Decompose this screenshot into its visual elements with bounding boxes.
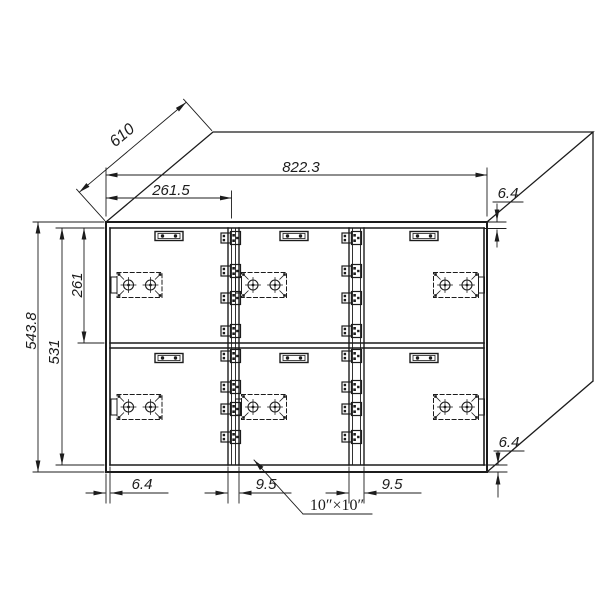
lock-assembly (111, 395, 162, 420)
dim-gap-left-label: 9.5 (256, 476, 278, 493)
label-plate (280, 232, 308, 241)
label-plate (155, 354, 183, 363)
door-gap-left (228, 228, 239, 465)
lock-assembly (236, 395, 287, 420)
lock-assembly (111, 273, 162, 298)
dim-inner-height: 531 (46, 228, 104, 465)
dim-door-height: 261 (69, 228, 104, 343)
dim-overall-height-label: 543.8 (23, 312, 40, 350)
dim-door-height-label: 261 (69, 272, 86, 298)
label-plate (410, 232, 438, 241)
dim-inner-height-label: 531 (46, 339, 63, 364)
label-plate (155, 232, 183, 241)
cabinet-isometric-drawing: 610 822.3 261.5 6.4 (0, 0, 600, 600)
lock-assembly (434, 273, 485, 298)
drawing-canvas: 610 822.3 261.5 6.4 (0, 0, 600, 600)
dim-left-frame-label: 6.4 (132, 476, 153, 493)
dim-top-frame: 6.4 (484, 185, 523, 247)
dim-depth: 610 (77, 99, 212, 220)
cabinet-front-frame (106, 222, 487, 472)
label-plate (280, 354, 308, 363)
lock-assembly (434, 395, 485, 420)
hinges (221, 232, 362, 444)
label-plate (410, 354, 438, 363)
lock-assemblies (111, 273, 485, 420)
dim-bottom-frame-label: 6.4 (499, 434, 520, 451)
door-size-label: 10″×10″ (310, 497, 364, 514)
right-face (487, 132, 593, 472)
dimensions: 610 822.3 261.5 6.4 (23, 99, 524, 514)
dim-overall-width-label: 822.3 (282, 159, 320, 176)
top-face (106, 132, 593, 222)
dim-gap-right-label: 9.5 (382, 476, 404, 493)
dim-door-width-label: 261.5 (151, 182, 190, 199)
lock-assembly (236, 273, 287, 298)
dim-overall-height: 543.8 (23, 222, 104, 472)
door-gap-right (349, 228, 364, 465)
dim-door-width: 261.5 (106, 182, 232, 218)
dim-bottom-frame: 6.4 (484, 434, 524, 497)
dim-top-frame-label: 6.4 (498, 185, 519, 202)
